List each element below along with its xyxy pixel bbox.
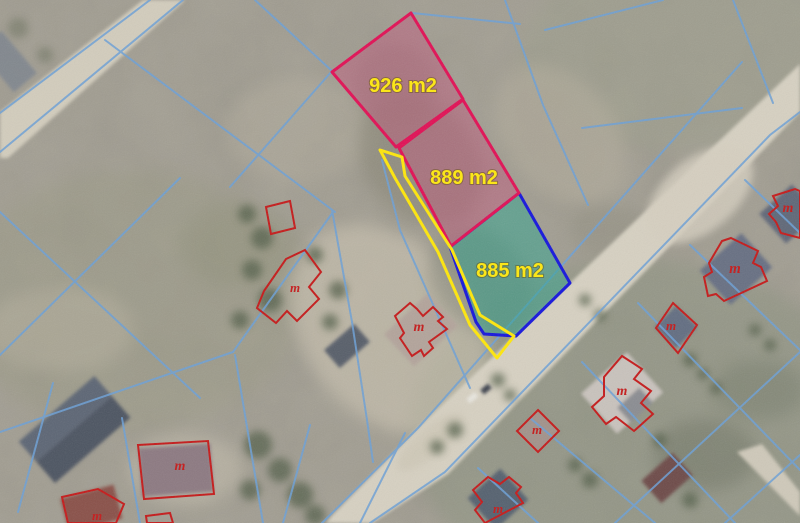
building-marker-label: m: [92, 508, 102, 523]
parcel-926-area-label: 926 m2: [369, 75, 437, 97]
building-marker-label: m: [783, 201, 794, 216]
building-marker-label: m: [175, 459, 186, 474]
building-marker-label: m: [666, 318, 676, 333]
building-marker-label: m: [414, 320, 425, 335]
aerial-map-view: m m m m m m m m m m 926 m2 889 m2 885 m2: [0, 0, 800, 523]
parcel-889-area-label: 889 m2: [430, 167, 498, 189]
building-marker-label: m: [617, 384, 628, 399]
building-marker-label: m: [532, 422, 542, 437]
map-canvas: m m m m m m m m m m 926 m2 889 m2 885 m2: [0, 0, 800, 523]
building-marker-label: m: [729, 261, 741, 277]
building-marker-label: m: [493, 501, 503, 516]
parcel-885-area-label: 885 m2: [476, 260, 544, 282]
building-marker-label: m: [290, 280, 300, 295]
